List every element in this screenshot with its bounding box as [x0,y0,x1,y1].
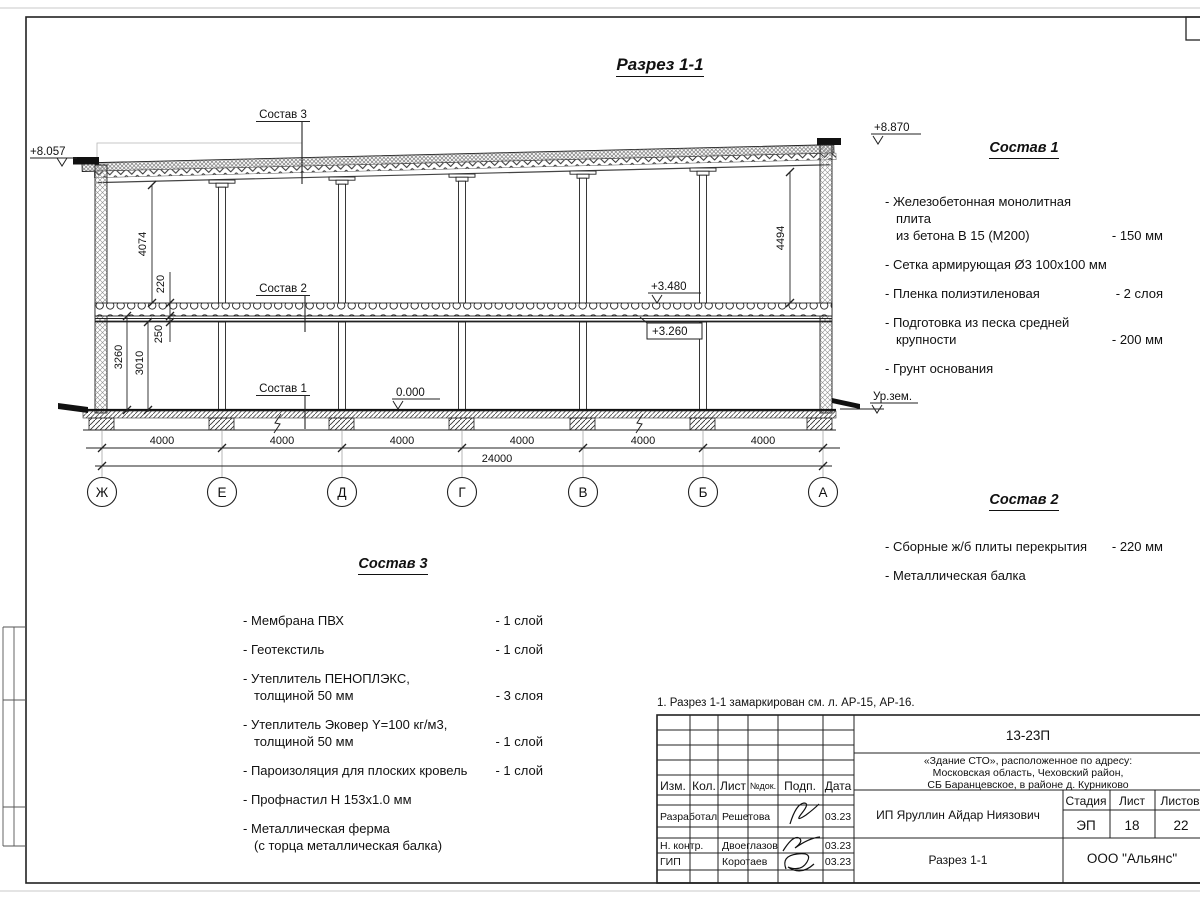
item-quantity: - 1 слой [487,733,543,750]
item-name: - Утеплитель Эковер Y=100 кг/м3, толщино… [243,716,447,750]
axis-label: В [578,485,587,500]
item-name: - Мембрана ПВХ [243,612,344,629]
sheets-total: 22 [1173,818,1188,833]
composition-item: - Утеплитель Эковер Y=100 кг/м3, толщино… [243,716,543,750]
company-name: ООО "Альянс" [1087,851,1177,866]
item-name: - Пленка полиэтиленовая [885,285,1040,302]
item-name: - Подготовка из песка средней крупности [885,314,1069,348]
col-kol: Кол. [692,779,716,793]
composition-item: - Грунт основания [885,360,1163,377]
dim-4494: 4494 [775,226,787,250]
axis-label: Д [337,485,346,500]
composition-item: - Пароизоляция для плоских кровель - 1 с… [243,762,543,779]
elevation-floor: 0.000 [396,387,425,399]
item-name: - Железобетонная монолитная плита из бет… [885,193,1104,244]
item-name: - Металлическая ферма (с торца металличе… [243,820,442,854]
composition-item: - Металлическая балка [885,567,1163,584]
item-quantity: - 1 слой [487,641,543,658]
extension-guide [97,143,302,160]
project-line-2: Московская область, Чеховский район, [933,767,1124,779]
dim-3010: 3010 [134,351,146,375]
composition-item: - Металлическая ферма (с торца металличе… [243,820,543,854]
item-name: - Металлическая балка [885,567,1026,584]
floor-slab [95,303,832,316]
axis-label: А [818,485,827,500]
axis-bubble: В [569,478,598,507]
title-block: Изм. Кол. Лист №док. Подп. Дата Разработ… [657,715,1200,883]
item-name: - Утеплитель ПЕНОПЛЭКС, толщиной 50 мм [243,670,410,704]
date-developer: 03.23 [825,811,851,823]
callout-sostav2: Состав 2 [259,283,307,295]
col-data: Дата [825,779,852,793]
composition-item: - Мембрана ПВХ - 1 слой [243,612,543,629]
axis-label: Ж [96,485,109,500]
role-developer: Разработал [660,811,717,823]
column [449,174,475,410]
doc-number: 13-23П [1006,728,1050,743]
item-quantity: - 220 мм [1104,538,1163,555]
date-gip: 03.23 [825,856,851,868]
corner-stamp-box [1186,17,1200,40]
dimension-chains: 4000 4000 4000 4000 4000 4000 24000 [86,431,840,477]
axis-label: Г [458,485,466,500]
span-dim: 4000 [390,435,414,447]
col-podp: Подп. [784,779,816,793]
span-dim: 4000 [150,435,174,447]
section-linework: 4074 220 250 3260 3010 4494 +8.057 +8.87… [0,0,1200,900]
dim-220: 220 [155,275,167,293]
dim-250: 250 [153,325,165,343]
item-name: - Геотекстиль [243,641,327,658]
role-gip: ГИП [660,856,681,868]
dim-3260: 3260 [113,345,125,369]
composition-3-title: Состав 3 [243,556,543,572]
wall-right [820,145,832,413]
name-ncontrol: Двоеглазов [722,840,778,852]
drawing-callouts: Состав 3 Состав 2 Состав 1 [256,109,310,429]
item-quantity: - 3 слоя [488,687,543,704]
ground-slab [83,411,836,418]
signature [783,837,820,851]
span-dim: 4000 [631,435,655,447]
sheet-number: 18 [1124,818,1139,833]
item-quantity: - 1 слой [487,612,543,629]
col-izm: Изм. [660,779,686,793]
ground-level-label: Ур.зем. [873,391,912,403]
name-developer: Решетова [722,811,770,823]
section-view [58,138,884,433]
item-quantity: - 2 слоя [1108,285,1163,302]
axis-bubble: Е [208,478,237,507]
span-dim: 4000 [510,435,534,447]
composition-1-list: - Железобетонная монолитная плита из бет… [885,193,1163,377]
project-line-1: «Здание СТО», расположенное по адресу: [924,755,1132,767]
item-quantity: - 150 мм [1104,227,1163,244]
composition-item: - Пленка полиэтиленовая - 2 слоя [885,285,1163,302]
role-ncontrol: Н. контр. [660,840,703,852]
item-quantity: - 1 слой [487,762,543,779]
item-name: - Пароизоляция для плоских кровель [243,762,467,779]
column [690,168,716,410]
drawing-title: Разрез 1-1 [560,55,760,75]
project-line-3: СБ Баранцевское, в районе д. Курниково [927,779,1128,791]
composition-2-block: Состав 2 - Сборные ж/б плиты перекрытия … [885,492,1163,596]
item-quantity: - 200 мм [1104,331,1163,348]
sheet-note: 1. Разрез 1-1 замаркирован см. л. АР-15,… [657,697,915,709]
stage-value: ЭП [1076,818,1095,833]
composition-item: - Сборные ж/б плиты перекрытия - 220 мм [885,538,1163,555]
elevation-roof-left: +8.057 [30,146,66,158]
name-gip: Коротаев [722,856,768,868]
composition-2-title: Состав 2 [885,492,1163,508]
col-ndok: №док. [750,781,776,791]
composition-1-title: Состав 1 [885,140,1163,156]
blind-area-right [832,398,860,409]
total-dim: 24000 [482,453,513,465]
wall-left [95,165,107,413]
callout-sostav3: Состав 3 [259,109,307,121]
signature [790,803,819,824]
span-dim: 4000 [270,435,294,447]
parapet-cap-right [817,138,841,145]
composition-1-block: Состав 1 - Железобетонная монолитная пли… [885,140,1163,389]
composition-item: - Утеплитель ПЕНОПЛЭКС, толщиной 50 мм -… [243,670,543,704]
stage-header: Стадия [1066,794,1107,808]
signature [785,854,814,871]
column [209,180,235,410]
axis-bubble: Ж [88,478,117,507]
blind-area-left [58,403,88,413]
foundation-blocks [89,418,832,430]
axis-bubble: А [809,478,838,507]
composition-item: - Подготовка из песка средней крупности … [885,314,1163,348]
composition-item: - Профнастил Н 153х1.0 мм [243,791,543,808]
item-name: - Сборные ж/б плиты перекрытия [885,538,1087,555]
axis-bubble: Г [448,478,477,507]
composition-item: - Сетка армирующая Ø3 100х100 мм [885,256,1163,273]
callout-sostav1: Состав 1 [259,383,307,395]
axis-bubbles: Ж Е Д Г В Б А [88,478,838,507]
client-name: ИП Яруллин Айдар Ниязович [876,808,1040,822]
date-ncontrol: 03.23 [825,840,851,852]
composition-2-list: - Сборные ж/б плиты перекрытия - 220 мм … [885,538,1163,584]
elevation-slab-bottom: +3.260 [652,326,688,338]
column [329,177,355,410]
sheet-header: Лист [1119,794,1146,808]
signatures [783,803,820,871]
item-name: - Профнастил Н 153х1.0 мм [243,791,412,808]
elevation-slab-top: +3.480 [651,281,687,293]
item-name: - Грунт основания [885,360,993,377]
axis-bubble: Д [328,478,357,507]
col-list: Лист [720,779,747,793]
sheet-title: Разрез 1-1 [929,853,988,867]
dim-4074: 4074 [137,232,149,256]
composition-3-block: Состав 3 - Мембрана ПВХ - 1 слой - Геоте… [243,556,543,866]
item-name: - Сетка армирующая Ø3 100х100 мм [885,256,1107,273]
drawing-sheet: 4074 220 250 3260 3010 4494 +8.057 +8.87… [0,0,1200,900]
span-dim: 4000 [751,435,775,447]
sheets-header: Листов [1161,794,1200,808]
left-edge-stamp [3,627,26,846]
composition-item: - Геотекстиль - 1 слой [243,641,543,658]
composition-3-list: - Мембрана ПВХ - 1 слой - Геотекстиль - … [243,612,543,854]
axis-bubble: Б [689,478,718,507]
column [570,171,596,410]
elevation-roof-right: +8.870 [874,122,910,134]
axis-label: Б [699,485,708,500]
axis-label: Е [217,485,226,500]
composition-item: - Железобетонная монолитная плита из бет… [885,193,1163,244]
